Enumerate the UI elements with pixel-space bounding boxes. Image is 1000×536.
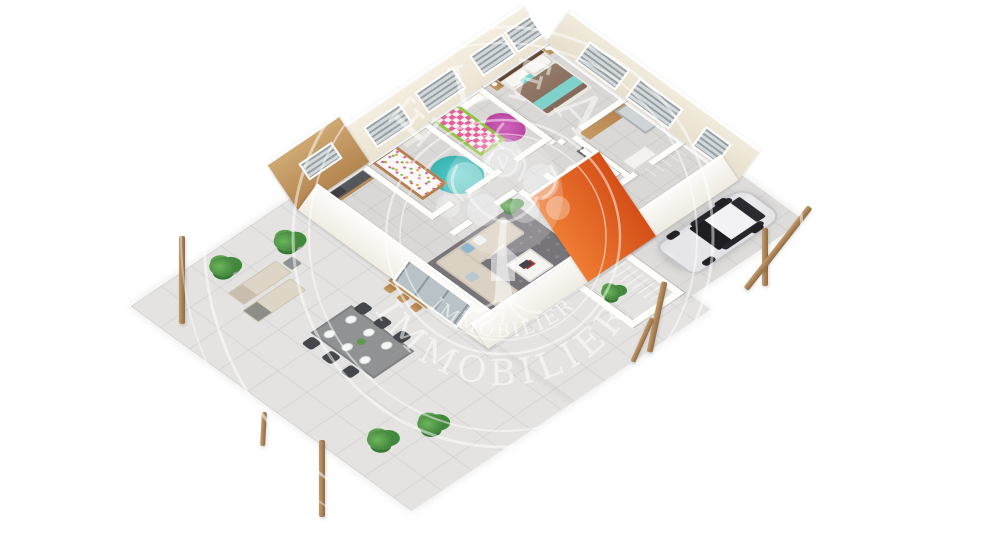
pergola-post <box>260 412 267 446</box>
floorplan-render: V ELFA IMMOBILIER IMMOBILIER <box>0 0 1000 536</box>
centerpiece <box>355 337 368 346</box>
pergola-post <box>179 236 185 324</box>
window <box>298 142 342 181</box>
pergola-post <box>319 440 325 517</box>
